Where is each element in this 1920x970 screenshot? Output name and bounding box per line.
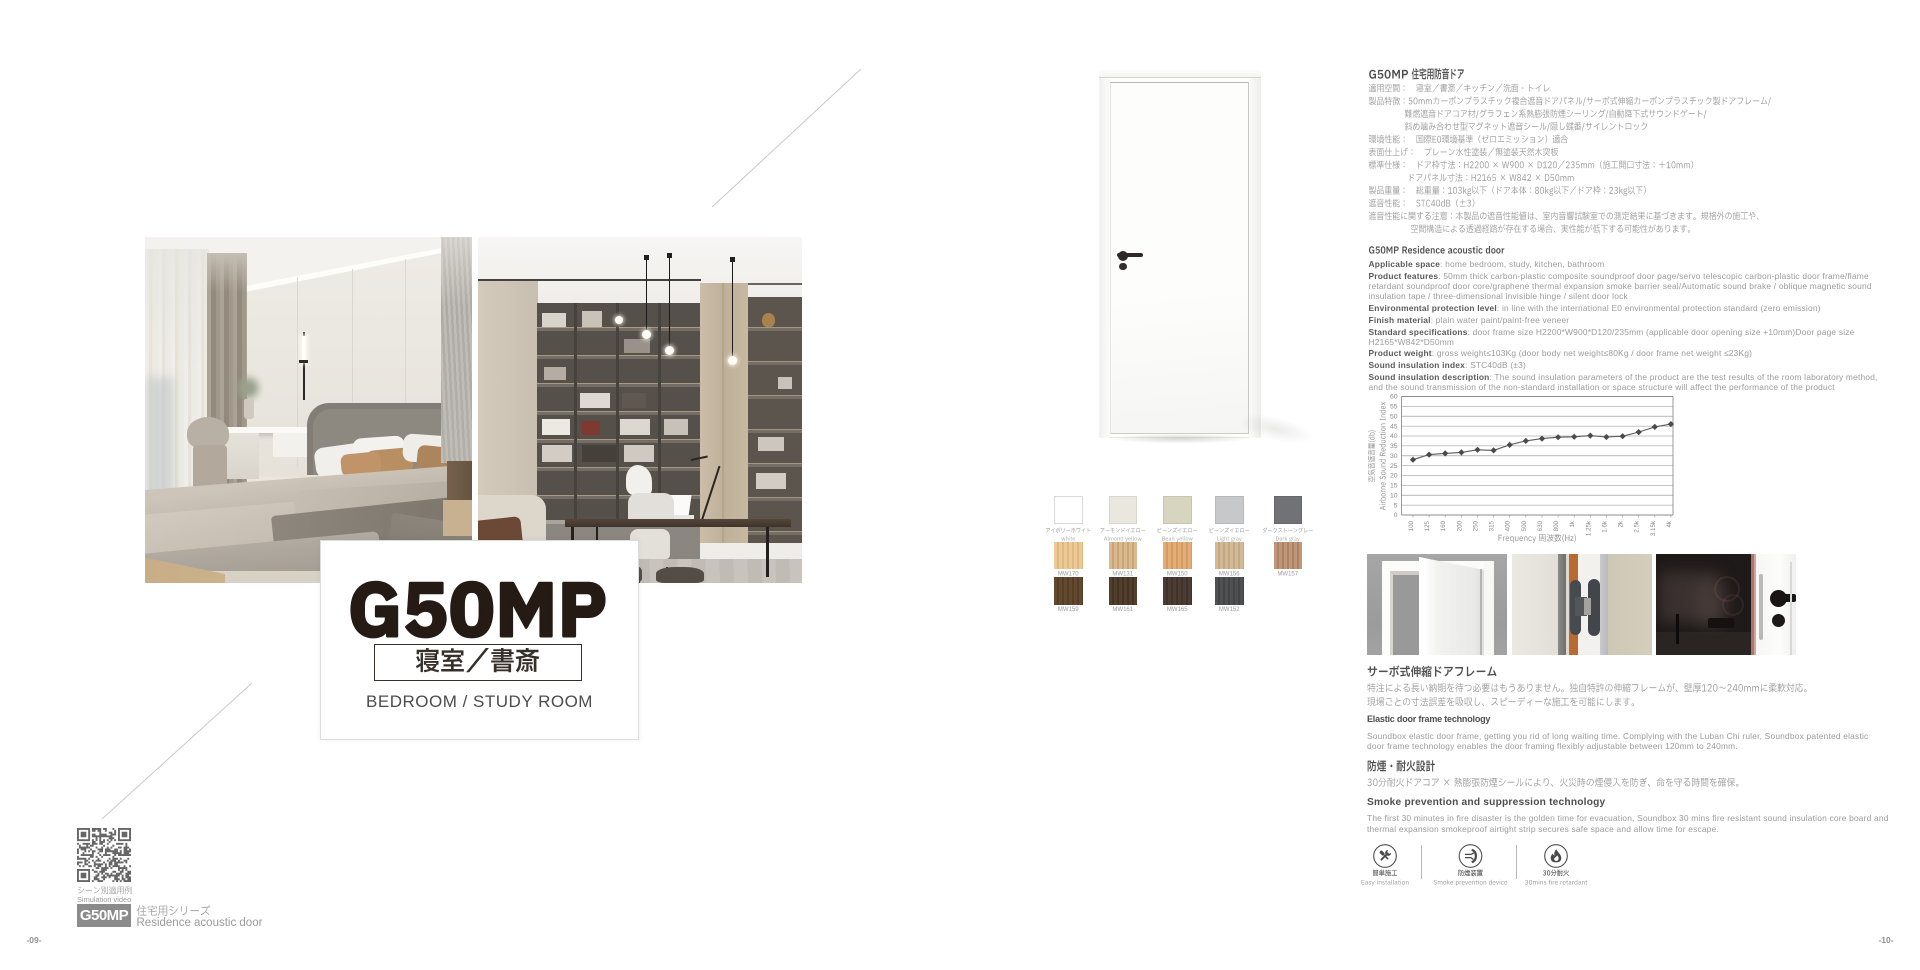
- svg-text:MW152: MW152: [1219, 607, 1240, 613]
- svg-text:MW157: MW157: [1277, 572, 1298, 578]
- svg-text:2.5k: 2.5k: [1634, 520, 1641, 533]
- svg-text:2k: 2k: [1618, 520, 1625, 527]
- svg-text:15: 15: [1390, 483, 1398, 490]
- svg-text:4k: 4k: [1666, 520, 1673, 527]
- svg-text:35: 35: [1390, 443, 1398, 450]
- svg-text:5: 5: [1394, 502, 1398, 509]
- svg-text:40: 40: [1390, 433, 1398, 440]
- svg-text:315: 315: [1489, 520, 1496, 531]
- svg-text:MW165: MW165: [1167, 607, 1188, 613]
- svg-text:160: 160: [1440, 520, 1447, 531]
- svg-text:200: 200: [1456, 520, 1463, 531]
- svg-text:45: 45: [1390, 423, 1398, 430]
- svg-text:0: 0: [1394, 512, 1398, 519]
- svg-text:800: 800: [1553, 520, 1560, 531]
- svg-text:1k: 1k: [1569, 520, 1576, 527]
- svg-text:MW161: MW161: [1112, 607, 1133, 613]
- svg-text:25: 25: [1390, 463, 1398, 470]
- svg-text:50: 50: [1390, 413, 1398, 420]
- svg-text:250: 250: [1473, 520, 1480, 531]
- svg-text:500: 500: [1521, 520, 1528, 531]
- svg-text:-09-: -09-: [26, 935, 41, 945]
- svg-text:3.15k: 3.15k: [1650, 520, 1657, 536]
- svg-text:30: 30: [1390, 453, 1398, 460]
- svg-text:1.25k: 1.25k: [1585, 520, 1592, 536]
- svg-text:55: 55: [1390, 404, 1398, 411]
- svg-text:630: 630: [1537, 520, 1544, 531]
- svg-text:MW159: MW159: [1058, 607, 1079, 613]
- svg-text:1.6k: 1.6k: [1601, 520, 1608, 533]
- svg-text:10: 10: [1390, 492, 1398, 499]
- svg-text:-10-: -10-: [1878, 935, 1893, 945]
- svg-text:60: 60: [1390, 394, 1398, 401]
- svg-text:400: 400: [1505, 520, 1512, 531]
- svg-text:125: 125: [1424, 520, 1431, 531]
- svg-text:20: 20: [1390, 473, 1398, 480]
- svg-text:100: 100: [1408, 520, 1415, 531]
